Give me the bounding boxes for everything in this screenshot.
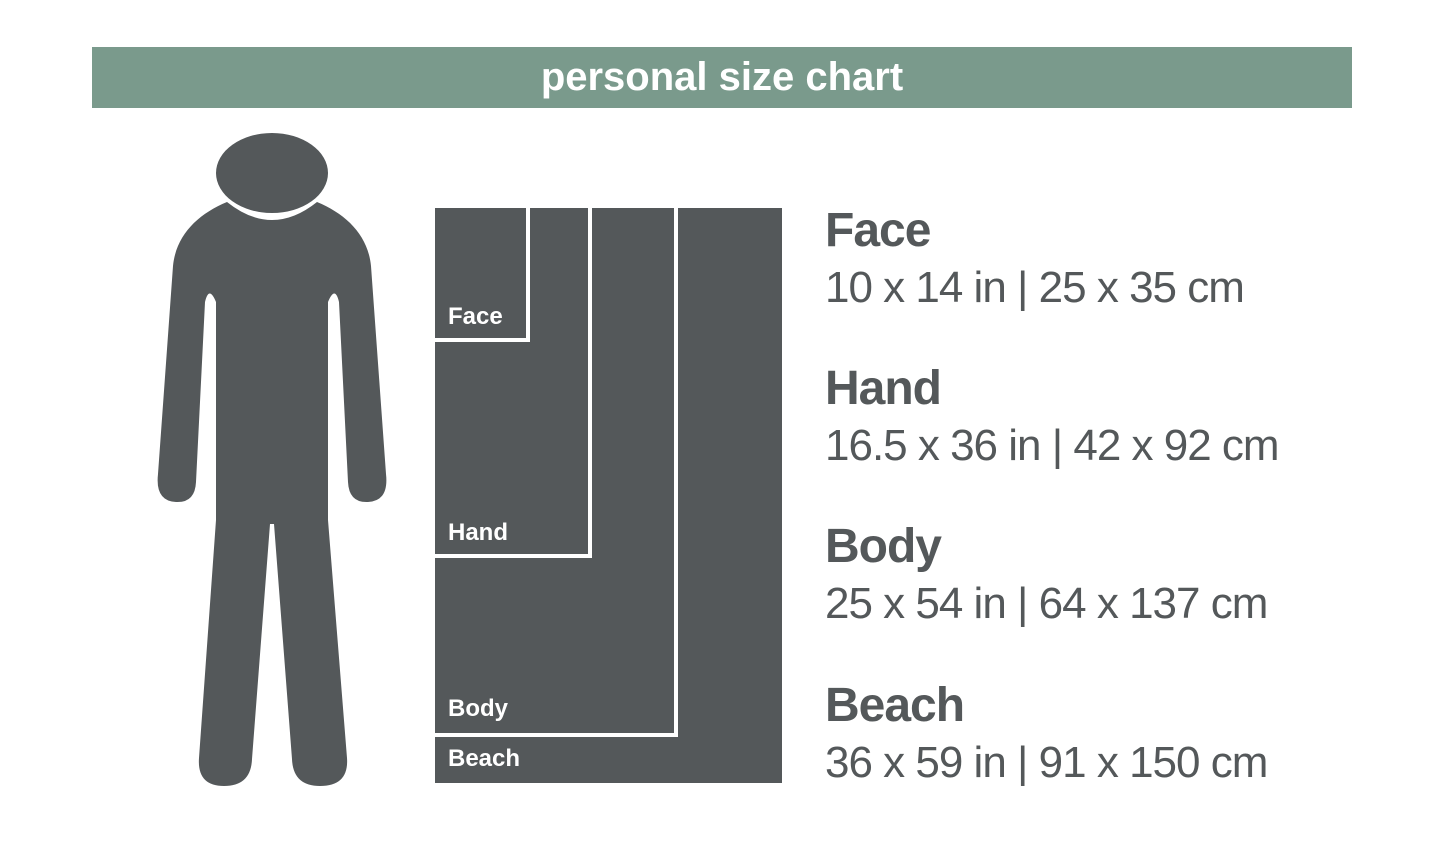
- size-dimensions: 10 x 14 in | 25 x 35 cm: [825, 259, 1244, 317]
- size-box-label: Body: [448, 697, 508, 721]
- size-name: Beach: [825, 678, 1267, 734]
- personal-size-chart: personal size chart Beach Body Hand Face…: [0, 0, 1445, 867]
- size-box-face: Face: [435, 208, 530, 342]
- size-box-label: Face: [448, 305, 503, 329]
- page-title: personal size chart: [541, 55, 903, 100]
- legend-entry-beach: Beach 36 x 59 in | 91 x 150 cm: [825, 678, 1267, 792]
- size-box-label: Hand: [448, 521, 508, 545]
- size-name: Face: [825, 203, 1244, 259]
- legend-entry-body: Body 25 x 54 in | 64 x 137 cm: [825, 519, 1267, 633]
- size-dimensions: 25 x 54 in | 64 x 137 cm: [825, 575, 1267, 633]
- size-box-label: Beach: [448, 747, 520, 771]
- legend-entry-hand: Hand 16.5 x 36 in | 42 x 92 cm: [825, 361, 1279, 475]
- title-bar: personal size chart: [92, 47, 1352, 108]
- size-name: Hand: [825, 361, 1279, 417]
- size-name: Body: [825, 519, 1267, 575]
- size-comparison-diagram: Beach Body Hand Face: [435, 208, 782, 783]
- size-dimensions: 36 x 59 in | 91 x 150 cm: [825, 734, 1267, 792]
- size-dimensions: 16.5 x 36 in | 42 x 92 cm: [825, 417, 1279, 475]
- person-silhouette-icon: [152, 132, 392, 792]
- legend-entry-face: Face 10 x 14 in | 25 x 35 cm: [825, 203, 1244, 317]
